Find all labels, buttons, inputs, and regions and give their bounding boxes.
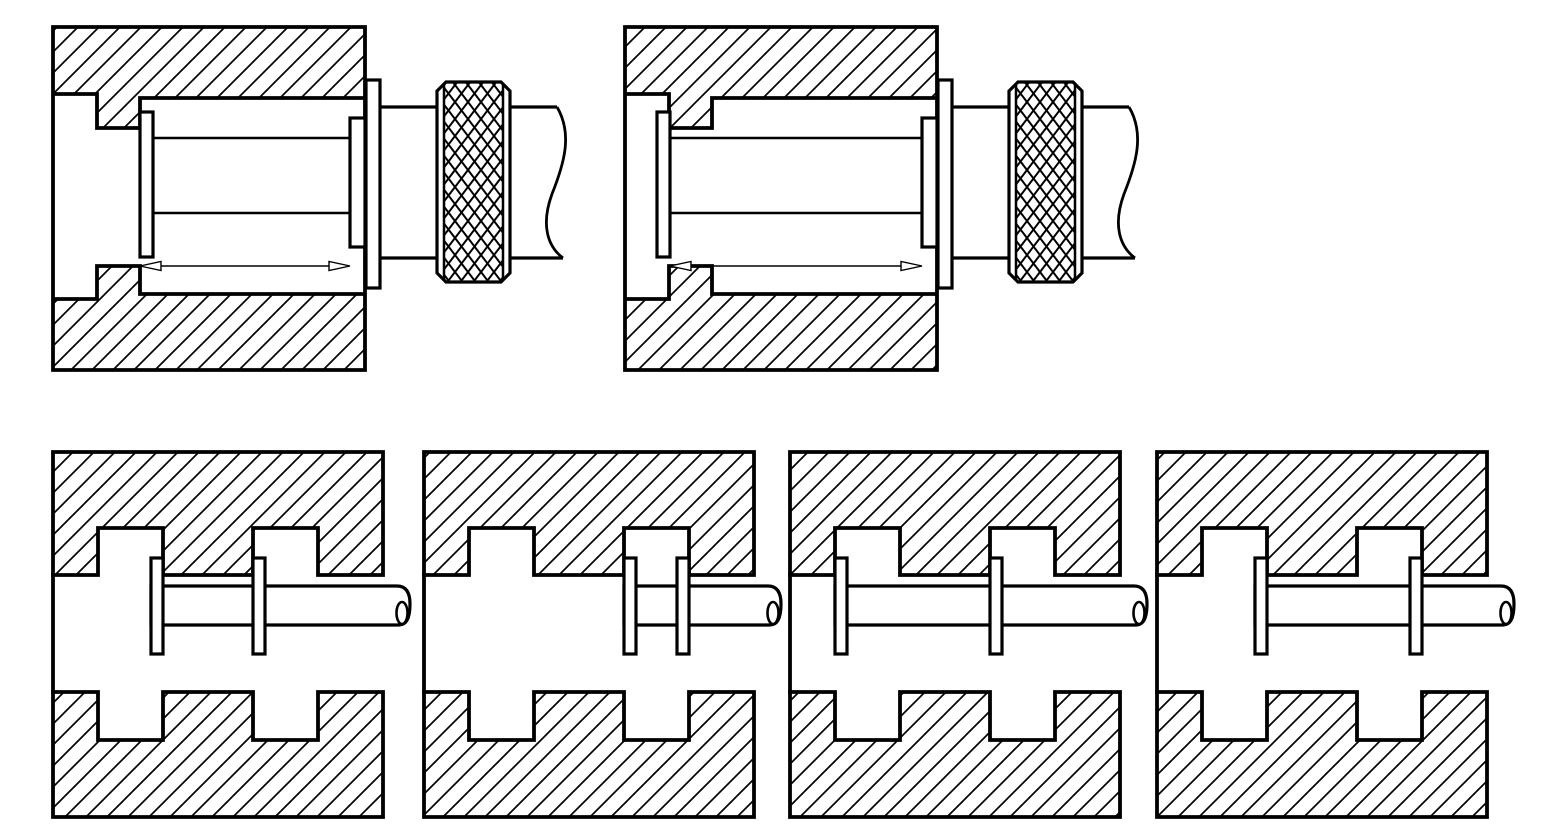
flange-washer-right xyxy=(677,558,689,654)
end-plate xyxy=(938,80,952,288)
flange-washer-right xyxy=(1410,558,1422,654)
end-plate xyxy=(366,80,380,288)
flange-washer-left xyxy=(151,558,163,654)
flange-washer xyxy=(140,112,153,257)
lower-die-section xyxy=(424,692,754,817)
sleeve-tube xyxy=(670,138,922,213)
shaft-end-tip xyxy=(768,602,779,624)
shaft xyxy=(151,586,410,625)
shaft xyxy=(380,107,437,258)
lower-die-section xyxy=(1157,692,1487,817)
housing-section xyxy=(625,27,937,370)
shaft-end-tip xyxy=(397,602,408,624)
knob-knurling xyxy=(1016,82,1075,282)
shaft xyxy=(952,107,1009,258)
shaft-end-tip xyxy=(1501,602,1512,624)
inner-flange xyxy=(350,118,365,247)
assembly-2 xyxy=(625,27,1138,370)
lower-die-section xyxy=(790,692,1120,817)
shaft xyxy=(1255,586,1514,625)
arrowhead-right xyxy=(901,262,922,271)
flange-washer-right xyxy=(253,558,265,654)
break-line xyxy=(546,107,565,258)
flange-washer-left xyxy=(835,558,847,654)
drawing-canvas xyxy=(0,0,1550,839)
assembly-1 xyxy=(53,27,566,370)
housing-section xyxy=(53,27,365,370)
upper-die-section xyxy=(53,452,383,575)
break-line xyxy=(1118,107,1137,258)
flange-washer xyxy=(657,112,670,257)
block-2 xyxy=(424,452,781,817)
flange-washer-right xyxy=(990,558,1002,654)
upper-die-section xyxy=(424,452,754,575)
technical-drawing-page xyxy=(0,0,1550,839)
travel-arrow xyxy=(140,262,350,271)
lower-die-section xyxy=(53,692,383,817)
knurled-knob xyxy=(437,82,510,282)
block-1 xyxy=(53,452,410,817)
knob-knurling xyxy=(444,82,503,282)
flange-washer-left xyxy=(624,558,636,654)
shaft xyxy=(624,586,781,625)
shaft-end-tip xyxy=(1134,602,1145,624)
sleeve-tube xyxy=(153,138,350,213)
block-4 xyxy=(1157,452,1514,817)
flange-washer-left xyxy=(1255,558,1267,654)
knurled-knob xyxy=(1009,82,1082,282)
upper-die-section xyxy=(1157,452,1487,575)
inner-flange xyxy=(922,118,937,247)
arrowhead-left xyxy=(140,262,161,271)
arrowhead-right xyxy=(329,262,350,271)
block-3 xyxy=(790,452,1147,817)
